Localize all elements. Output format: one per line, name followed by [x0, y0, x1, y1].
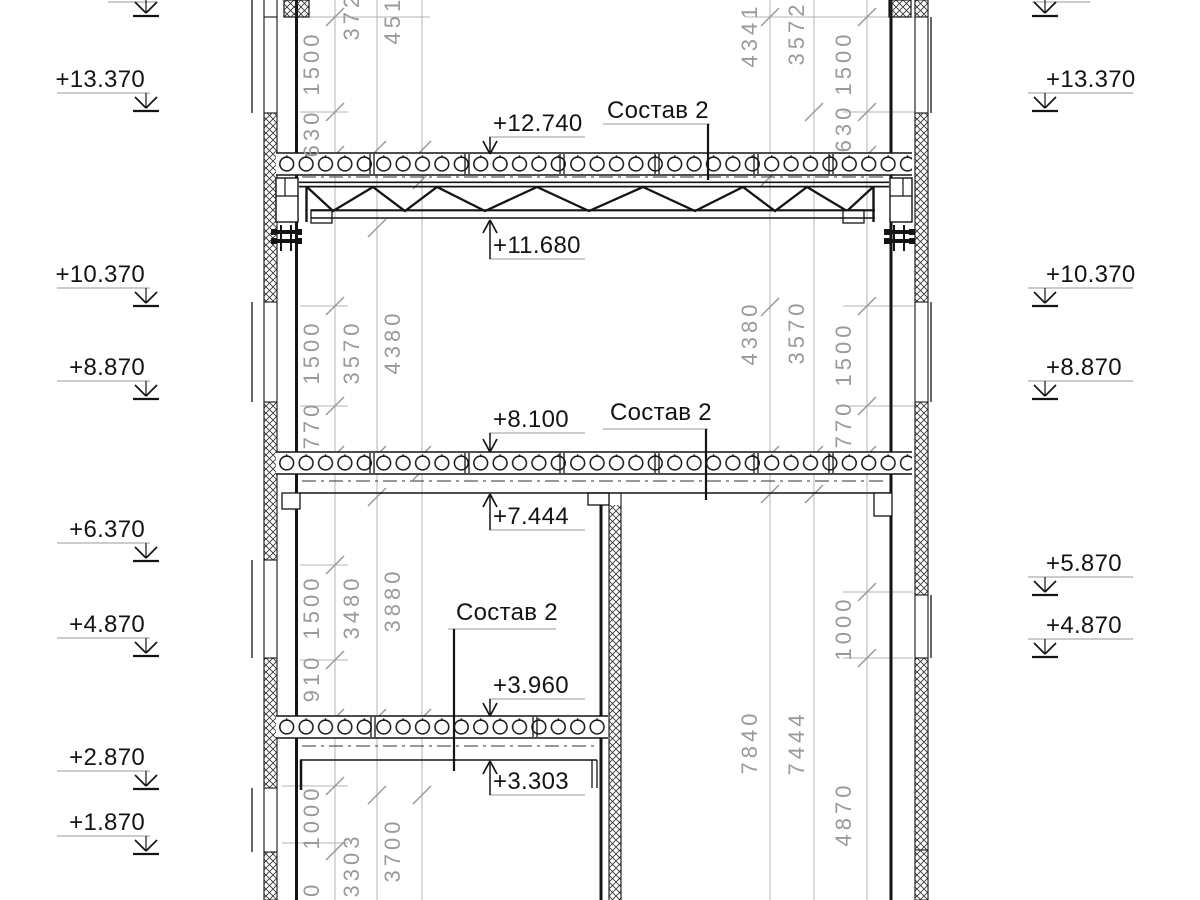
bolt-nut [271, 238, 277, 244]
elevation-arrowhead [1034, 292, 1045, 303]
elevation-mark-left: +6.370 [69, 516, 145, 543]
elevation-arrowhead [135, 385, 146, 396]
dimension-text: 3880 [380, 568, 405, 633]
elevation-arrowhead [146, 547, 157, 558]
level-callout-text: +12.740 [493, 110, 583, 137]
dimension-text: 1500 [299, 575, 324, 640]
elevation-arrowhead [1045, 643, 1056, 654]
composition-callout-text: Состав 2 [607, 97, 709, 124]
bearing-seat [276, 178, 298, 222]
elevation-mark-left: +2.870 [69, 744, 145, 771]
elevation-arrowhead [1045, 385, 1056, 396]
truss-support-bracket [311, 210, 332, 223]
lintel-block [889, 0, 911, 17]
elevation-mark-right: +4.870 [1046, 612, 1122, 639]
elevation-arrowhead [135, 97, 146, 108]
wall-hatch-segment [915, 658, 928, 900]
wall-hatch-segment [915, 0, 928, 17]
dimension-text: 630 [831, 104, 856, 153]
level-callout-arrowhead [490, 703, 497, 716]
dimension-layer [282, 0, 915, 900]
elevation-mark-left: +13.370 [55, 66, 145, 93]
level-callout-text: +3.960 [493, 672, 569, 699]
elevation-mark-right: +10.370 [1046, 261, 1136, 288]
elevation-arrowhead [1045, 292, 1056, 303]
dimension-text: 4870 [831, 782, 856, 847]
level-callout-text: +7.444 [493, 503, 569, 530]
section-drawing-canvas: +12.740+11.680+8.100+7.444+3.960+3.303Со… [0, 0, 1200, 900]
bolt-nut [296, 238, 302, 244]
composition-callout-text: Состав 2 [610, 399, 712, 426]
elevation-arrowhead [1034, 581, 1045, 592]
elevation-arrowhead [146, 775, 157, 786]
wall-hatch-segment [915, 113, 928, 302]
dimension-text: 770 [831, 400, 856, 449]
elevation-arrowhead [1034, 385, 1045, 396]
elevation-arrowhead [146, 2, 157, 13]
elevation-arrowhead [1045, 581, 1056, 592]
bolt-nut [271, 229, 277, 235]
level-callout-text: +8.100 [493, 406, 569, 433]
dimension-text: 1500 [831, 31, 856, 96]
dimension-text: 3572 [784, 1, 809, 66]
interior-wall-corbel [588, 493, 609, 505]
bearing-seat [890, 178, 912, 222]
elevation-arrowhead [1045, 2, 1056, 13]
elevation-arrowhead [146, 642, 157, 653]
elevation-arrowhead [1034, 2, 1045, 13]
truss-support-bracket [843, 210, 864, 223]
composition-callout-text: Состав 2 [456, 599, 558, 626]
wall-hatch-segment [264, 852, 277, 900]
wall-step [874, 493, 892, 516]
dimension-text: 4380 [380, 310, 405, 375]
truss-diagonals [307, 187, 873, 211]
bolt-nut [296, 229, 302, 235]
level-callout-arrowhead [483, 494, 490, 507]
elevation-arrowhead [1034, 97, 1045, 108]
bolt-bar [887, 239, 912, 243]
dimension-text: 4380 [737, 301, 762, 366]
dimension-text: 7444 [784, 711, 809, 776]
level-callout-arrowhead [483, 761, 490, 774]
elevation-arrowhead [146, 97, 157, 108]
level-callout-arrowhead [483, 703, 490, 716]
level-callout-text: +3.303 [493, 768, 569, 795]
bolt-nut [884, 229, 890, 235]
elevation-arrowhead [135, 775, 146, 786]
elevation-mark-left: +8.870 [69, 354, 145, 381]
bolt-bar [887, 230, 912, 234]
dimension-text: 1500 [831, 322, 856, 387]
dimension-text: 3303 [339, 833, 364, 898]
bolt-nut [909, 238, 915, 244]
lintel-block [284, 0, 309, 17]
structure-layer [252, 0, 931, 900]
wall-step [282, 493, 300, 509]
text-layer: +12.740+11.680+8.100+7.444+3.960+3.303Со… [55, 0, 1135, 900]
wall-hatch-segment [264, 402, 277, 560]
dimension-text: 4516 [380, 0, 405, 44]
dimension-text: 1000 [299, 785, 324, 850]
dimension-text: 3480 [339, 575, 364, 640]
wall-hatch-segment [915, 402, 928, 595]
dimension-text: 1500 [299, 320, 324, 385]
elevation-arrowhead [135, 2, 146, 13]
dimension-text: 770 [299, 401, 324, 450]
dimension-text: 3570 [339, 320, 364, 385]
elevation-mark-right: +8.870 [1046, 354, 1122, 381]
elevation-mark-left: +10.370 [55, 261, 145, 288]
interior-wall-hatch [610, 505, 621, 900]
slab-void-row [276, 154, 912, 174]
dimension-text: 3724 [339, 0, 364, 40]
elevation-arrowhead [135, 547, 146, 558]
elevation-arrowhead [135, 292, 146, 303]
level-callout-arrowhead [483, 141, 490, 154]
level-callout-arrowhead [483, 439, 490, 452]
elevation-arrowhead [1045, 97, 1056, 108]
bolt-nut [909, 229, 915, 235]
elevation-arrowhead [135, 642, 146, 653]
dimension-text: 3570 [784, 300, 809, 365]
wall-hatch-segment [264, 658, 277, 788]
section-drawing: +12.740+11.680+8.100+7.444+3.960+3.303Со… [0, 0, 1200, 900]
dimension-text: 770 [299, 881, 324, 900]
elevation-arrowhead [146, 385, 157, 396]
elevation-mark-right: +5.870 [1046, 550, 1122, 577]
slab-void-row [276, 453, 912, 473]
elevation-mark-left: +1.870 [69, 809, 145, 836]
dimension-text: 1000 [831, 596, 856, 661]
elevation-mark-left: +4.870 [69, 611, 145, 638]
dimension-text: 4341 [737, 3, 762, 68]
wall-hatch-segment [264, 113, 277, 302]
elevation-arrowhead [1034, 643, 1045, 654]
dimension-text: 1500 [299, 31, 324, 96]
elevation-arrowhead [146, 292, 157, 303]
slab-void-row [276, 717, 608, 737]
dimension-text: 7840 [737, 710, 762, 775]
level-callout-text: +11.680 [493, 232, 581, 259]
dimension-text: 630 [299, 109, 324, 158]
bolt-nut [884, 238, 890, 244]
level-callout-arrowhead [490, 141, 497, 154]
bolt-bar [274, 230, 299, 234]
level-callout-arrowhead [490, 439, 497, 452]
dimension-text: 3700 [380, 818, 405, 883]
elevation-arrowhead [146, 840, 157, 851]
bolt-bar [274, 239, 299, 243]
elevation-mark-right: +13.370 [1046, 66, 1136, 93]
dimension-text: 910 [299, 654, 324, 703]
elevation-arrowhead [135, 840, 146, 851]
level-callout-arrowhead [483, 220, 490, 233]
